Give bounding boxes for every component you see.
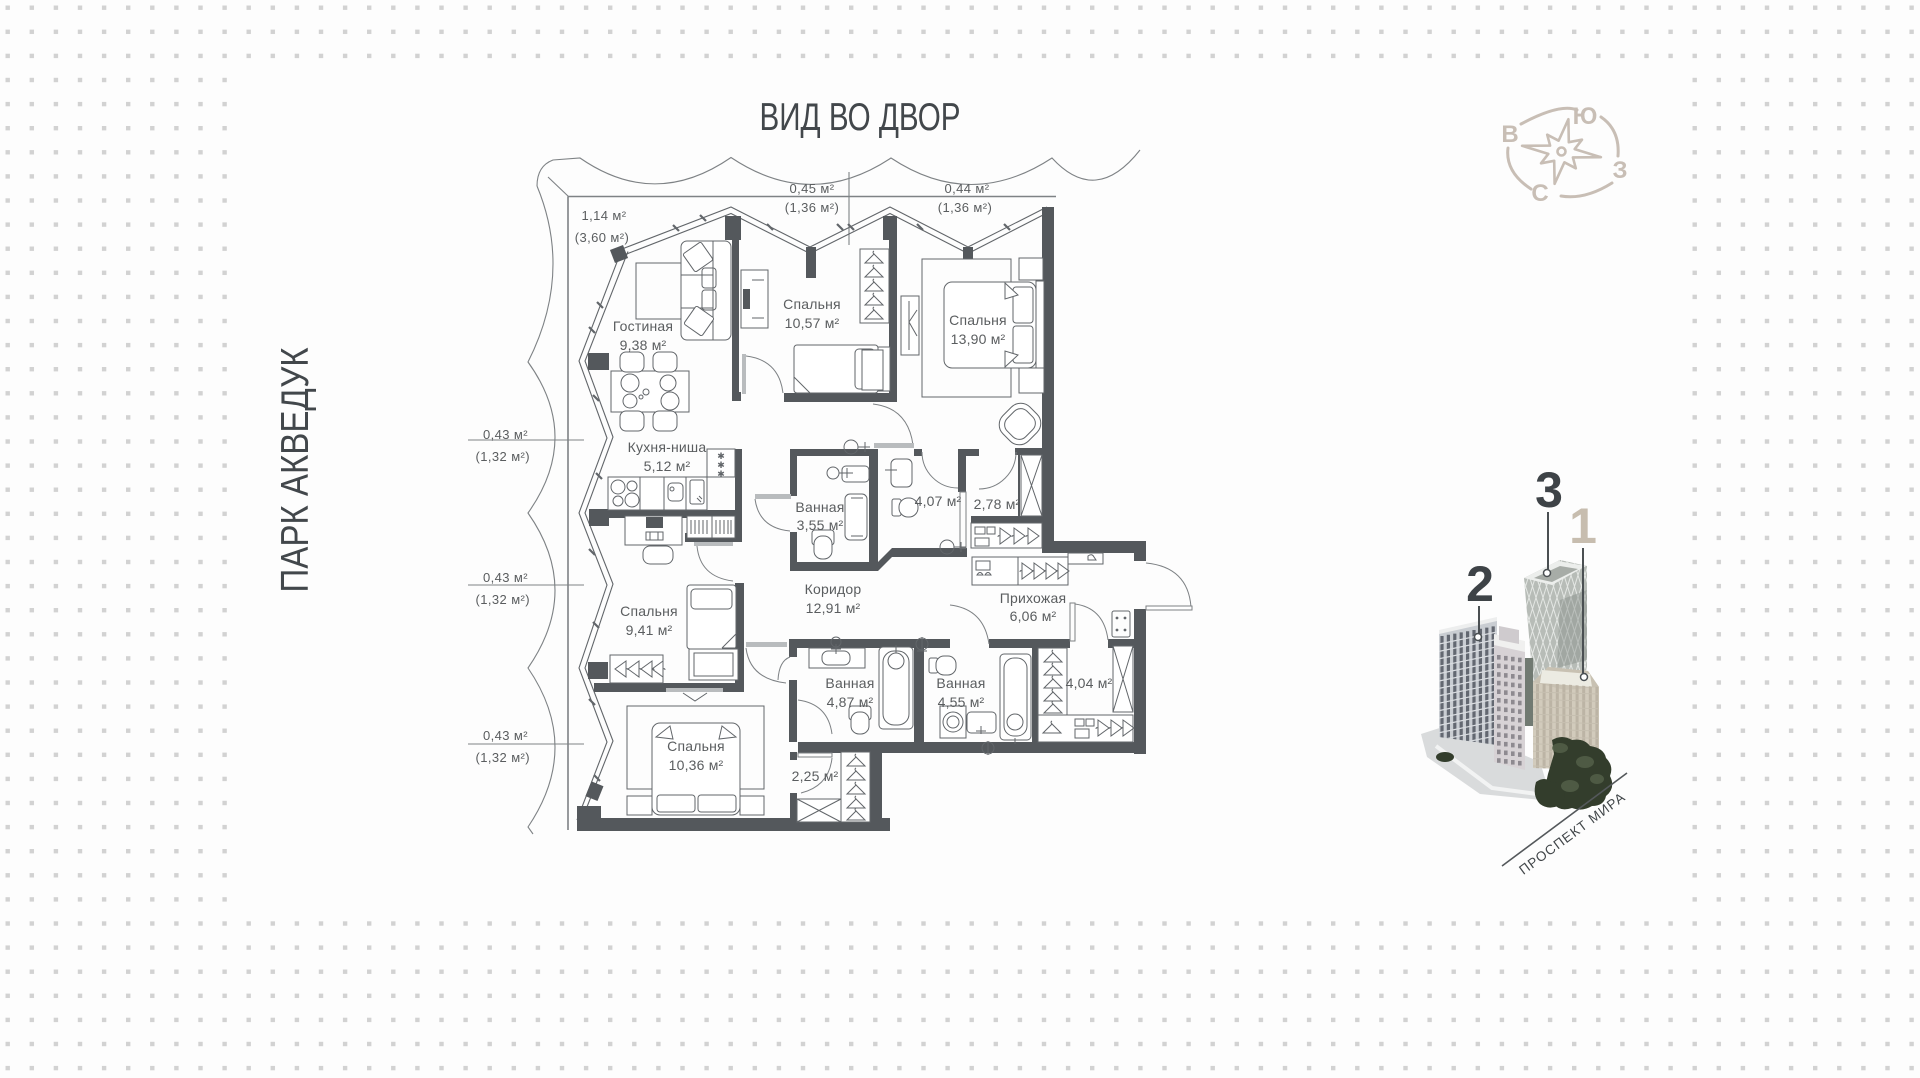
svg-text:4,87 м²: 4,87 м²	[827, 694, 874, 710]
svg-text:Ванная: Ванная	[936, 675, 985, 691]
svg-text:12,91 м²: 12,91 м²	[806, 600, 861, 616]
svg-text:Спальня: Спальня	[620, 603, 678, 619]
svg-text:0,43 м²: 0,43 м²	[483, 728, 528, 743]
svg-text:0,43 м²: 0,43 м²	[483, 570, 528, 585]
svg-text:Кухня-ниша: Кухня-ниша	[628, 439, 707, 455]
svg-text:13,90 м²: 13,90 м²	[951, 331, 1006, 347]
svg-text:1,14 м²: 1,14 м²	[582, 208, 627, 223]
svg-text:З: З	[1612, 157, 1627, 184]
svg-text:4,07 м²: 4,07 м²	[915, 493, 962, 509]
svg-text:3,55 м²: 3,55 м²	[797, 517, 844, 533]
svg-text:С: С	[1531, 180, 1548, 207]
svg-text:В: В	[1501, 121, 1518, 148]
svg-text:9,41 м²: 9,41 м²	[626, 622, 673, 638]
svg-text:Гостиная: Гостиная	[613, 318, 673, 334]
svg-text:ВИД ВО ДВОР: ВИД ВО ДВОР	[760, 96, 961, 139]
svg-text:6,06 м²: 6,06 м²	[1010, 608, 1057, 624]
svg-text:✱: ✱	[717, 469, 725, 479]
svg-text:(1,36 м²): (1,36 м²)	[785, 200, 839, 215]
svg-text:ПАРК АКВЕДУК: ПАРК АКВЕДУК	[274, 347, 317, 592]
svg-text:(1,32 м²): (1,32 м²)	[476, 750, 530, 765]
svg-text:Ванная: Ванная	[825, 675, 874, 691]
svg-text:(3,60 м²): (3,60 м²)	[575, 230, 629, 245]
svg-text:(1,36 м²): (1,36 м²)	[938, 200, 992, 215]
svg-text:Коридор: Коридор	[805, 581, 862, 597]
svg-text:2: 2	[1466, 556, 1494, 612]
svg-text:(1,32 м²): (1,32 м²)	[476, 592, 530, 607]
svg-text:Ю: Ю	[1573, 103, 1598, 130]
svg-text:Прихожая: Прихожая	[1000, 590, 1066, 606]
svg-text:Ванная: Ванная	[795, 499, 844, 515]
svg-text:2,78 м²: 2,78 м²	[974, 496, 1021, 512]
svg-text:Спальня: Спальня	[949, 312, 1007, 328]
svg-text:10,36 м²: 10,36 м²	[669, 757, 724, 773]
svg-text:(1,32 м²): (1,32 м²)	[476, 449, 530, 464]
svg-text:0,45 м²: 0,45 м²	[790, 181, 835, 196]
svg-text:5,12 м²: 5,12 м²	[644, 458, 691, 474]
svg-text:Спальня: Спальня	[783, 296, 841, 312]
svg-text:0,43 м²: 0,43 м²	[483, 427, 528, 442]
svg-text:2,25 м²: 2,25 м²	[792, 768, 839, 784]
svg-text:10,57 м²: 10,57 м²	[785, 315, 840, 331]
svg-text:0,44 м²: 0,44 м²	[945, 181, 990, 196]
svg-text:Спальня: Спальня	[667, 738, 725, 754]
svg-text:9,38 м²: 9,38 м²	[620, 337, 667, 353]
svg-text:4,55 м²: 4,55 м²	[938, 694, 985, 710]
svg-text:4,04 м²: 4,04 м²	[1066, 675, 1113, 691]
svg-text:3: 3	[1535, 462, 1563, 518]
svg-text:1: 1	[1569, 498, 1597, 554]
